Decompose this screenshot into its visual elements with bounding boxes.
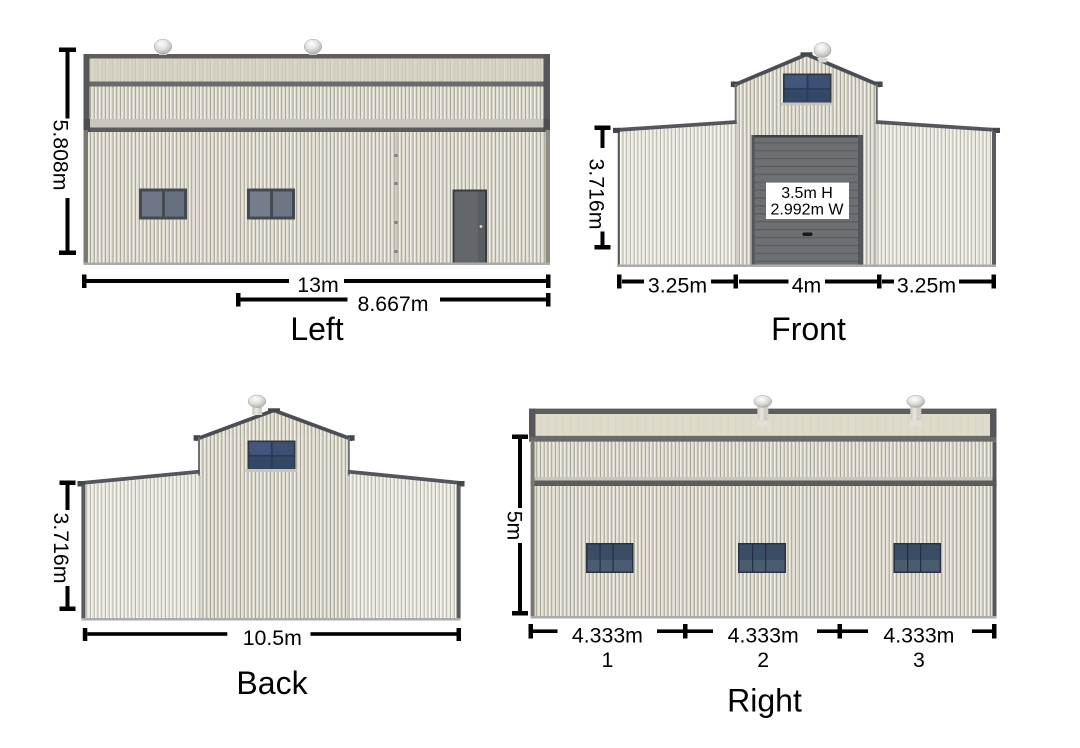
svg-text:13m: 13m xyxy=(297,273,338,297)
svg-text:10.5m: 10.5m xyxy=(243,626,302,650)
svg-text:3.25m: 3.25m xyxy=(648,274,707,298)
svg-text:3.25m: 3.25m xyxy=(897,274,956,298)
svg-text:4.333m: 4.333m xyxy=(728,624,799,648)
svg-text:3.716m: 3.716m xyxy=(49,512,73,583)
svg-text:5.808m: 5.808m xyxy=(49,119,73,190)
svg-text:Left: Left xyxy=(290,311,343,347)
svg-text:Front: Front xyxy=(771,311,846,347)
svg-text:5m: 5m xyxy=(503,511,527,541)
svg-text:8.667m: 8.667m xyxy=(357,292,428,316)
svg-text:Back: Back xyxy=(236,665,308,701)
svg-text:4m: 4m xyxy=(792,274,822,298)
svg-text:3.5m H: 3.5m H xyxy=(781,185,833,202)
svg-text:Right: Right xyxy=(727,683,802,719)
svg-text:2.992m W: 2.992m W xyxy=(771,202,845,219)
svg-text:3: 3 xyxy=(913,648,925,672)
svg-text:4.333m: 4.333m xyxy=(572,624,643,648)
svg-text:1: 1 xyxy=(601,648,613,672)
svg-text:4.333m: 4.333m xyxy=(883,624,954,648)
svg-text:3.716m: 3.716m xyxy=(585,158,609,229)
svg-text:2: 2 xyxy=(757,648,769,672)
